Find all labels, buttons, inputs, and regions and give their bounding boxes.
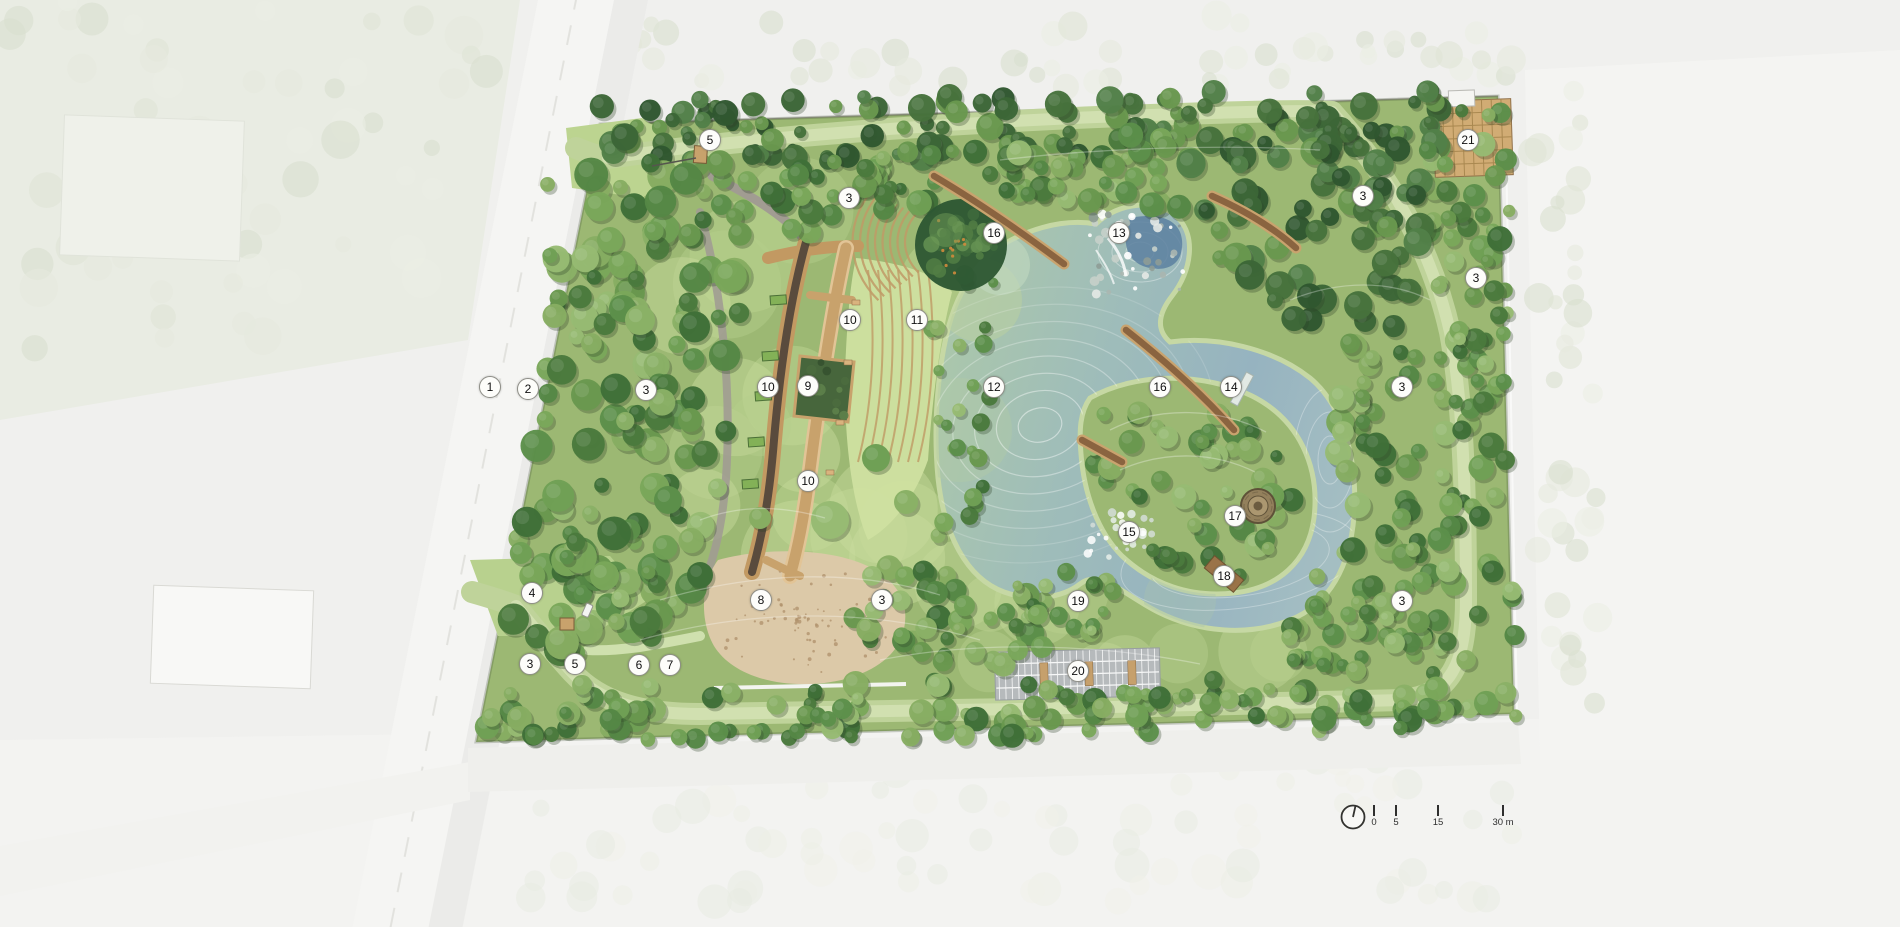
master-plan-illustration [0, 0, 1900, 927]
park-site [470, 80, 1527, 752]
site-plan-canvas: 1233333333455678910101011121314151616171… [0, 0, 1900, 927]
observation-tower [1241, 489, 1275, 523]
courtyard [794, 356, 854, 422]
